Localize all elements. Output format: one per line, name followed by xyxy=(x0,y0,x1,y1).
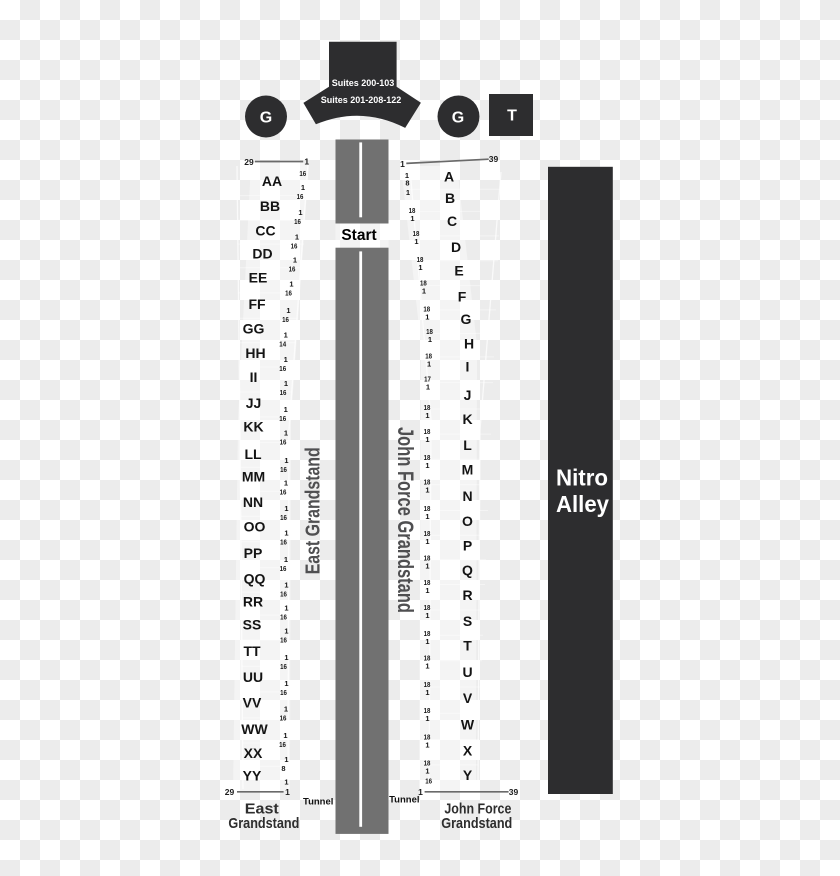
svg-text:JJ: JJ xyxy=(246,395,262,411)
svg-text:1: 1 xyxy=(284,653,288,662)
svg-text:1: 1 xyxy=(425,662,429,671)
svg-text:TT: TT xyxy=(243,643,261,659)
svg-text:V: V xyxy=(463,690,473,706)
svg-text:P: P xyxy=(463,538,472,554)
svg-text:Tunnel: Tunnel xyxy=(389,795,419,806)
svg-text:R: R xyxy=(462,587,472,603)
svg-text:E: E xyxy=(454,263,463,279)
svg-text:RR: RR xyxy=(243,594,263,610)
svg-text:16: 16 xyxy=(279,740,286,749)
svg-text:1: 1 xyxy=(425,562,429,571)
svg-text:1: 1 xyxy=(285,787,290,797)
svg-text:16: 16 xyxy=(280,488,287,497)
svg-text:1: 1 xyxy=(425,714,429,723)
svg-text:1: 1 xyxy=(425,767,429,776)
svg-text:MM: MM xyxy=(242,469,265,485)
svg-text:1: 1 xyxy=(286,306,290,315)
svg-text:O: O xyxy=(462,513,473,529)
svg-text:OO: OO xyxy=(244,519,266,535)
svg-text:8: 8 xyxy=(281,764,285,773)
svg-text:16: 16 xyxy=(280,388,287,397)
svg-text:1: 1 xyxy=(400,159,405,169)
svg-text:16: 16 xyxy=(280,636,287,645)
svg-text:14: 14 xyxy=(279,339,286,348)
svg-text:29: 29 xyxy=(225,787,235,797)
svg-text:1: 1 xyxy=(284,479,288,488)
svg-text:1: 1 xyxy=(284,679,288,688)
svg-text:1: 1 xyxy=(427,360,431,369)
svg-text:1: 1 xyxy=(418,263,422,272)
svg-text:1: 1 xyxy=(425,688,429,697)
svg-text:1: 1 xyxy=(425,611,429,620)
svg-text:B: B xyxy=(445,190,455,206)
svg-text:Suites 200-103: Suites 200-103 xyxy=(332,78,395,88)
svg-text:1: 1 xyxy=(284,581,288,590)
svg-text:16: 16 xyxy=(280,714,287,723)
svg-text:1: 1 xyxy=(295,233,299,242)
svg-text:16: 16 xyxy=(294,217,301,226)
svg-text:Grandstand: Grandstand xyxy=(441,815,512,832)
svg-text:VV: VV xyxy=(243,695,262,711)
svg-text:16: 16 xyxy=(280,613,287,622)
svg-text:1: 1 xyxy=(284,627,288,636)
svg-text:GG: GG xyxy=(243,320,265,336)
svg-text:1: 1 xyxy=(298,208,302,217)
svg-text:39: 39 xyxy=(509,787,519,797)
svg-text:X: X xyxy=(463,743,473,759)
svg-text:1: 1 xyxy=(304,157,309,167)
svg-text:G: G xyxy=(260,110,272,127)
svg-text:H: H xyxy=(464,336,474,352)
svg-text:1: 1 xyxy=(284,405,288,414)
svg-text:1: 1 xyxy=(284,705,288,714)
svg-text:1: 1 xyxy=(284,355,288,364)
svg-text:16: 16 xyxy=(291,242,298,251)
svg-text:1: 1 xyxy=(284,429,288,438)
svg-text:QQ: QQ xyxy=(244,571,266,587)
svg-text:1: 1 xyxy=(289,280,293,289)
svg-text:39: 39 xyxy=(489,154,499,164)
svg-text:16: 16 xyxy=(280,438,287,447)
svg-text:T: T xyxy=(507,108,517,125)
svg-text:1: 1 xyxy=(426,382,430,391)
svg-text:1: 1 xyxy=(425,313,429,322)
svg-text:M: M xyxy=(462,462,474,478)
svg-text:FF: FF xyxy=(248,296,266,312)
svg-text:1: 1 xyxy=(428,335,432,344)
svg-text:16: 16 xyxy=(425,776,432,785)
svg-text:1: 1 xyxy=(284,755,288,764)
svg-text:John Force Grandstand: John Force Grandstand xyxy=(393,427,418,613)
svg-text:16: 16 xyxy=(280,688,287,697)
svg-text:1: 1 xyxy=(410,214,414,223)
svg-text:A: A xyxy=(444,168,454,184)
svg-text:S: S xyxy=(463,613,472,629)
svg-text:16: 16 xyxy=(279,414,286,423)
svg-text:G: G xyxy=(461,311,472,327)
svg-text:1: 1 xyxy=(425,486,429,495)
svg-text:L: L xyxy=(463,437,472,453)
svg-text:HH: HH xyxy=(245,345,265,361)
svg-text:J: J xyxy=(464,387,472,403)
svg-text:1: 1 xyxy=(284,529,288,538)
svg-text:1: 1 xyxy=(301,183,305,192)
svg-text:1: 1 xyxy=(284,778,288,787)
svg-text:G: G xyxy=(452,110,464,127)
svg-text:EE: EE xyxy=(249,270,268,286)
svg-text:16: 16 xyxy=(289,265,296,274)
svg-text:16: 16 xyxy=(282,315,289,324)
svg-text:1: 1 xyxy=(425,411,429,420)
svg-text:Y: Y xyxy=(463,767,473,783)
svg-text:PP: PP xyxy=(244,545,263,561)
svg-text:1: 1 xyxy=(425,586,429,595)
svg-text:Q: Q xyxy=(462,562,473,578)
svg-text:II: II xyxy=(250,369,258,385)
svg-text:16: 16 xyxy=(297,192,304,201)
svg-text:C: C xyxy=(447,213,457,229)
svg-text:1: 1 xyxy=(283,731,287,740)
svg-text:16: 16 xyxy=(280,590,287,599)
svg-text:Suites 201-208-122: Suites 201-208-122 xyxy=(321,95,402,105)
svg-text:1: 1 xyxy=(422,287,426,296)
svg-text:Nitro: Nitro xyxy=(556,465,608,491)
svg-text:16: 16 xyxy=(280,564,287,573)
svg-text:T: T xyxy=(463,638,472,654)
svg-text:Alley: Alley xyxy=(556,491,609,517)
svg-text:CC: CC xyxy=(255,223,275,239)
svg-text:1: 1 xyxy=(293,256,297,265)
svg-text:16: 16 xyxy=(279,364,286,373)
svg-text:1: 1 xyxy=(414,237,418,246)
svg-text:16: 16 xyxy=(280,662,287,671)
svg-text:NN: NN xyxy=(243,494,263,510)
svg-text:AA: AA xyxy=(262,173,282,189)
svg-text:XX: XX xyxy=(244,745,263,761)
svg-text:D: D xyxy=(451,239,461,255)
svg-text:LL: LL xyxy=(244,446,262,462)
svg-text:I: I xyxy=(466,358,470,374)
svg-text:W: W xyxy=(461,717,475,733)
svg-text:1: 1 xyxy=(284,604,288,613)
svg-text:1: 1 xyxy=(284,330,288,339)
svg-text:UU: UU xyxy=(243,669,263,685)
svg-text:1: 1 xyxy=(425,741,429,750)
svg-text:1: 1 xyxy=(425,461,429,470)
svg-text:F: F xyxy=(458,289,467,305)
svg-text:16: 16 xyxy=(280,513,287,522)
svg-text:1: 1 xyxy=(425,537,429,546)
svg-text:SS: SS xyxy=(243,617,262,633)
svg-text:1: 1 xyxy=(406,188,410,197)
svg-text:1: 1 xyxy=(284,555,288,564)
svg-text:BB: BB xyxy=(260,198,280,214)
svg-text:8: 8 xyxy=(405,179,409,188)
svg-text:1: 1 xyxy=(284,456,288,465)
svg-text:KK: KK xyxy=(243,419,263,435)
svg-text:U: U xyxy=(462,664,472,680)
svg-text:1: 1 xyxy=(425,512,429,521)
svg-text:1: 1 xyxy=(284,504,288,513)
svg-text:YY: YY xyxy=(243,768,262,784)
svg-text:16: 16 xyxy=(285,289,292,298)
svg-text:1: 1 xyxy=(425,637,429,646)
svg-text:Tunnel: Tunnel xyxy=(303,797,333,808)
svg-text:DD: DD xyxy=(252,246,272,262)
svg-text:East Grandstand: East Grandstand xyxy=(303,447,325,574)
svg-text:Grandstand: Grandstand xyxy=(228,815,299,832)
svg-text:1: 1 xyxy=(425,435,429,444)
svg-text:N: N xyxy=(462,488,472,504)
svg-text:Start: Start xyxy=(341,227,376,244)
svg-text:16: 16 xyxy=(280,538,287,547)
svg-text:WW: WW xyxy=(241,721,268,737)
svg-text:29: 29 xyxy=(244,157,254,167)
svg-text:16: 16 xyxy=(299,169,306,178)
svg-text:1: 1 xyxy=(284,379,288,388)
svg-text:16: 16 xyxy=(280,465,287,474)
svg-text:K: K xyxy=(462,411,472,427)
